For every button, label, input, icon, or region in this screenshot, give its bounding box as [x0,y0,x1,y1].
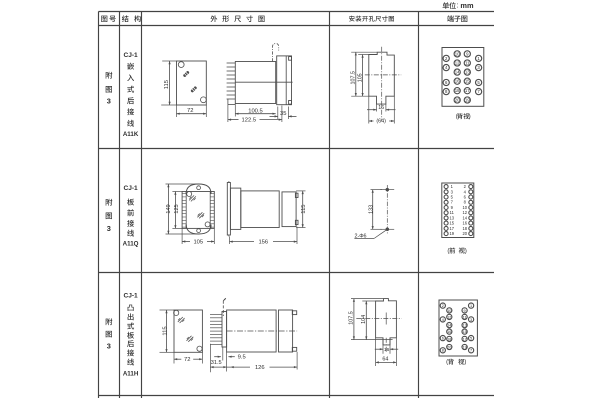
svg-text:20: 20 [463,231,468,236]
svg-text:105: 105 [193,239,203,245]
svg-text:6: 6 [442,337,444,341]
svg-text:3: 3 [470,318,472,322]
svg-text:14: 14 [455,70,460,75]
svg-text:16: 16 [378,105,384,111]
svg-text:122.5: 122.5 [242,118,257,124]
svg-text:125: 125 [174,204,180,213]
svg-text:2-Φ6: 2-Φ6 [354,234,366,240]
svg-text:11: 11 [463,315,467,319]
svg-text:mm: mm [460,1,474,10]
svg-text:10: 10 [455,51,460,56]
svg-text:107.5: 107.5 [351,71,357,85]
svg-text:64: 64 [382,357,388,363]
svg-text:11: 11 [465,61,470,66]
svg-text:7: 7 [470,349,472,353]
svg-text:16: 16 [455,79,460,84]
svg-text:9: 9 [464,309,466,313]
svg-text:10: 10 [447,309,451,313]
svg-text:105: 105 [357,73,363,82]
svg-text:133: 133 [369,205,375,214]
svg-text:9.5: 9.5 [238,355,246,361]
svg-text:20: 20 [447,345,451,349]
svg-text:18: 18 [463,226,468,231]
svg-text:12: 12 [455,61,460,66]
svg-text:(64): (64) [376,119,386,125]
svg-text:16: 16 [384,347,390,353]
svg-text:A11K: A11K [123,131,139,138]
svg-text:149: 149 [166,204,172,213]
svg-text:19: 19 [465,98,470,103]
svg-text:): ) [469,113,471,120]
svg-text:115: 115 [301,204,307,213]
svg-text:13: 13 [465,70,470,75]
svg-text:3: 3 [107,224,111,233]
svg-text:17: 17 [465,88,470,93]
svg-text:3: 3 [107,342,111,351]
svg-text:72: 72 [187,108,193,114]
svg-text:35: 35 [280,111,286,117]
svg-text:104: 104 [361,315,367,324]
svg-text:18: 18 [455,88,460,93]
svg-text:107.5: 107.5 [349,311,355,325]
svg-text:115: 115 [164,80,170,89]
svg-text:72: 72 [184,357,190,363]
svg-text:8: 8 [442,349,444,353]
svg-text:31.5: 31.5 [211,360,222,366]
svg-text:19: 19 [450,231,455,236]
svg-text:17: 17 [450,226,455,231]
svg-text:19: 19 [462,345,466,349]
svg-text:20: 20 [455,98,460,103]
svg-text:CJ-1: CJ-1 [123,292,138,299]
svg-text:115: 115 [162,326,168,335]
svg-text:2: 2 [442,304,444,308]
svg-text:12: 12 [447,315,451,319]
svg-text:5: 5 [470,337,472,341]
svg-text:17: 17 [462,337,466,341]
svg-text:18: 18 [447,337,451,341]
svg-text:15: 15 [462,330,466,334]
svg-text:156: 156 [258,240,268,246]
svg-text:13: 13 [462,324,466,328]
svg-text:A11H: A11H [123,371,139,378]
svg-text:): ) [465,248,467,255]
svg-text:14: 14 [447,324,451,328]
svg-text:3: 3 [107,97,111,106]
svg-text:CJ-1: CJ-1 [123,52,138,59]
svg-text:): ) [464,359,466,366]
svg-text:CJ-1: CJ-1 [123,185,138,192]
svg-text:4: 4 [442,318,444,322]
svg-text::: : [457,3,459,10]
svg-text:126: 126 [255,365,265,371]
svg-text:1: 1 [470,304,472,308]
svg-text:16: 16 [447,330,451,334]
svg-text:100.5: 100.5 [248,108,263,114]
svg-text:A11Q: A11Q [123,241,139,248]
svg-text:15: 15 [465,79,470,84]
